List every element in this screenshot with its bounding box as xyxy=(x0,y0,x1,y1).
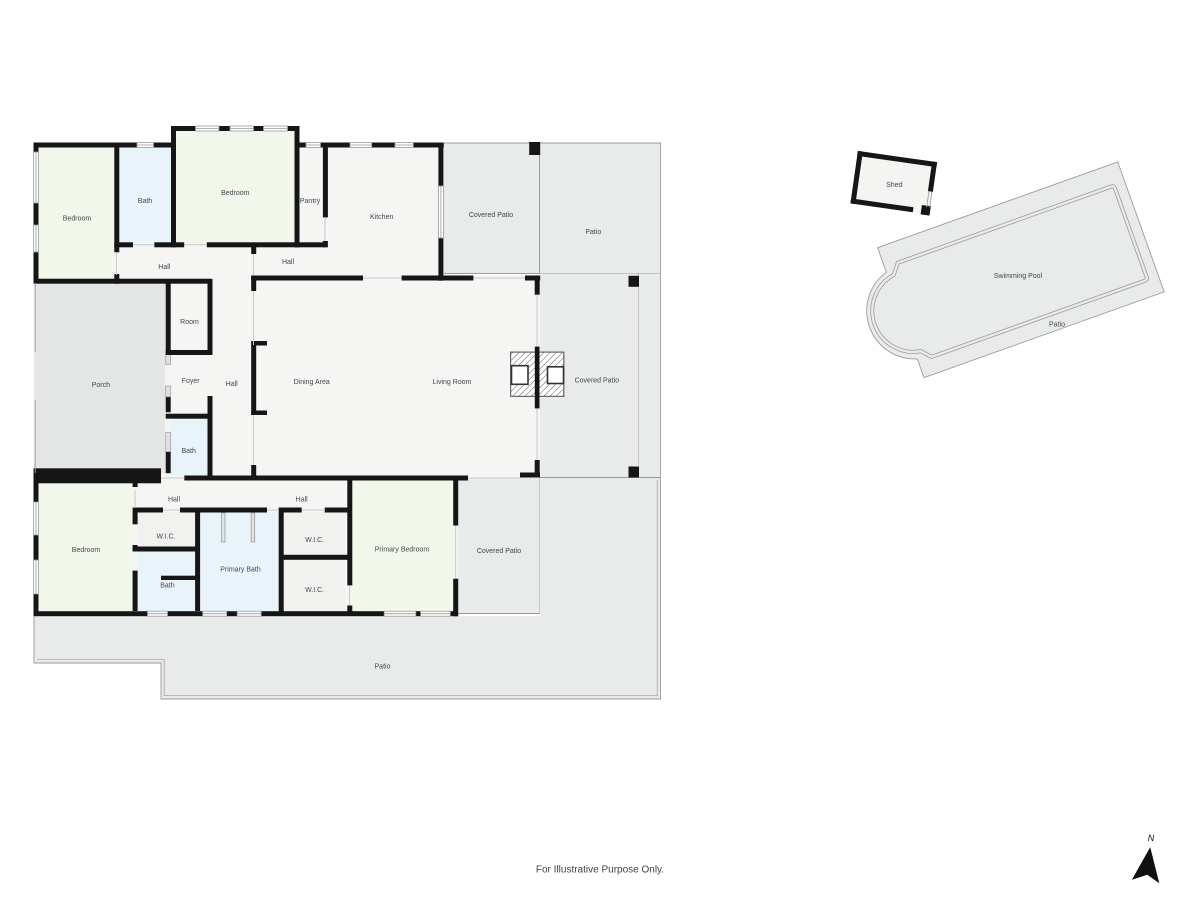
svg-text:Patio: Patio xyxy=(585,229,601,236)
svg-text:Hall: Hall xyxy=(296,496,309,503)
svg-text:Primary Bedroom: Primary Bedroom xyxy=(375,547,430,554)
svg-text:Covered Patio: Covered Patio xyxy=(575,377,619,384)
svg-text:Pantry: Pantry xyxy=(300,198,321,205)
svg-text:Covered Patio: Covered Patio xyxy=(469,212,513,219)
svg-text:Hall: Hall xyxy=(282,259,295,266)
svg-text:Bath: Bath xyxy=(138,198,153,205)
svg-text:Hall: Hall xyxy=(226,381,239,388)
svg-text:Bath: Bath xyxy=(181,448,196,455)
svg-text:Dining Area: Dining Area xyxy=(294,379,330,386)
svg-text:Bedroom: Bedroom xyxy=(221,190,250,197)
svg-text:Primary Bath: Primary Bath xyxy=(220,566,261,573)
svg-text:Bedroom: Bedroom xyxy=(63,215,92,222)
svg-text:Bath: Bath xyxy=(160,582,175,589)
svg-text:Hall: Hall xyxy=(168,496,181,503)
svg-text:Bedroom: Bedroom xyxy=(72,547,101,554)
svg-text:W.I.C.: W.I.C. xyxy=(305,537,324,544)
svg-text:Patio: Patio xyxy=(375,663,391,670)
svg-text:N: N xyxy=(1148,833,1155,843)
svg-text:W.I.C.: W.I.C. xyxy=(156,533,175,540)
svg-text:Shed: Shed xyxy=(886,182,902,189)
svg-text:W.I.C.: W.I.C. xyxy=(305,587,324,594)
svg-text:Swimming Pool: Swimming Pool xyxy=(994,273,1043,280)
svg-text:Kitchen: Kitchen xyxy=(370,214,393,221)
svg-text:Porch: Porch xyxy=(92,382,110,389)
svg-text:Foyer: Foyer xyxy=(182,378,201,385)
svg-text:Living Room: Living Room xyxy=(433,379,472,386)
svg-text:Room: Room xyxy=(180,319,199,326)
svg-text:Hall: Hall xyxy=(158,264,171,271)
svg-text:Covered Patio: Covered Patio xyxy=(477,548,521,555)
svg-text:For Illustrative Purpose Only.: For Illustrative Purpose Only. xyxy=(536,865,664,876)
svg-text:Patio: Patio xyxy=(1049,321,1065,328)
